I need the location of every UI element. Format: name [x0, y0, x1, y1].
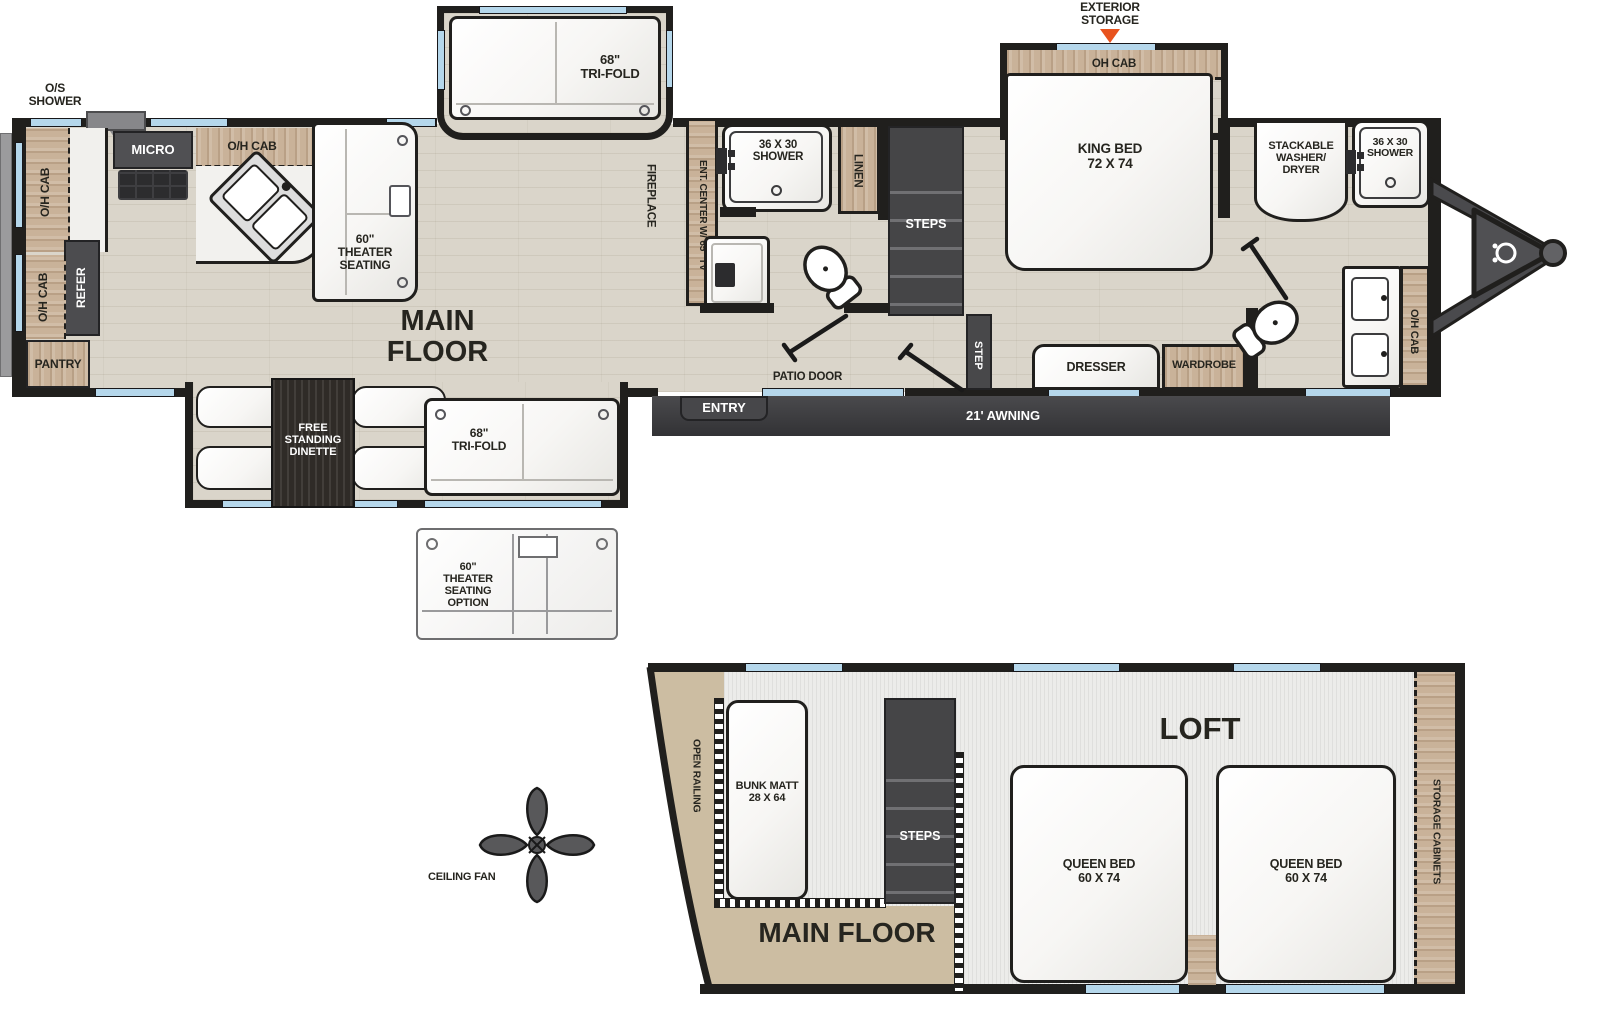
window [30, 118, 82, 127]
shower-knob-icon [728, 150, 735, 157]
shower-knob-icon [1357, 164, 1364, 171]
step-label: STEP [972, 324, 984, 386]
oh-cab-label: O/H CAB [39, 142, 52, 242]
wall [844, 303, 890, 313]
refrigerator: REFER [64, 240, 100, 336]
storage-cabinets-label: STORAGE CABINETS [1430, 762, 1441, 902]
storage-cabinets: STORAGE CABINETS [1414, 672, 1455, 984]
king-bed: KING BED 72 X 74 [1005, 73, 1213, 271]
oh-cab-label: O/H CAB [196, 140, 308, 153]
microwave: MICRO [113, 131, 193, 169]
entry-door: ENTRY [680, 396, 768, 421]
drain-icon [1385, 177, 1396, 188]
sofa-bolt-icon [598, 409, 609, 420]
window [1233, 663, 1321, 672]
loft-title: LOFT [1130, 712, 1270, 745]
window [150, 118, 228, 127]
wall [1246, 308, 1258, 390]
bath-sink [704, 236, 770, 310]
shower-knob-icon [1357, 152, 1364, 159]
overhead-cabinet: O/H CAB [1400, 266, 1430, 388]
wall [720, 207, 756, 217]
kitchen-counter [70, 128, 108, 252]
theater-option-label: 60" THEATER SEATING OPTION [428, 562, 508, 610]
sofa-bolt-icon [397, 135, 408, 146]
window [437, 30, 445, 90]
bunk-mattress: BUNK MATT 28 X 64 [726, 700, 808, 900]
vanity [1342, 266, 1402, 388]
main-floor-label: MAIN FLOOR [350, 306, 525, 369]
exterior-storage-label: EXTERIOR STORAGE [1040, 1, 1180, 27]
queen-bed-left: QUEEN BED 60 X 74 [1010, 765, 1188, 983]
tri-fold-top-label: 68" TRI-FOLD [564, 53, 656, 81]
king-bed-label: KING BED 72 X 74 [1060, 142, 1160, 171]
window [1013, 663, 1120, 672]
dinette-label: FREE STANDING DINETTE [273, 422, 353, 458]
queen-bed-right-label: QUEEN BED 60 X 74 [1256, 858, 1356, 885]
rear-bumper [0, 133, 12, 377]
window [15, 254, 23, 332]
wardrobe-label: WARDROBE [1165, 360, 1243, 372]
steps-to-bedroom: STEPS [888, 126, 964, 316]
window [95, 388, 175, 397]
washer-dryer: STACKABLE WASHER/ DRYER [1254, 120, 1348, 222]
theater-seating: 60" THEATER SEATING [312, 122, 418, 302]
loft-steps: STEPS [884, 698, 956, 904]
window [666, 30, 673, 88]
sofa-bolt-icon [596, 538, 608, 550]
wardrobe: WARDROBE [1162, 344, 1246, 390]
window [1225, 984, 1385, 994]
cup-holder [389, 185, 411, 217]
window [479, 6, 627, 14]
shower-head-icon [1346, 150, 1356, 174]
console-tray [518, 536, 558, 558]
drain-icon [771, 185, 782, 196]
loft-main-floor-label: MAIN FLOOR [758, 918, 936, 948]
dresser: DRESSER [1032, 344, 1160, 390]
linen-cabinet: LINEN [838, 124, 880, 214]
shower-knob-icon [728, 163, 735, 170]
sofa-bolt-icon [460, 105, 471, 116]
wall [700, 303, 774, 313]
window [424, 500, 602, 508]
oh-cab-label: O/H CAB [37, 255, 50, 339]
hitch-coupler-icon [1541, 241, 1565, 265]
sofa-bolt-icon [435, 409, 446, 420]
loft-steps-label: STEPS [886, 830, 954, 844]
tri-fold-bottom-label: 68" TRI-FOLD [433, 427, 525, 453]
steps-label: STEPS [890, 218, 962, 232]
oh-cab-right-label: O/H CAB [1407, 289, 1419, 375]
washer-label: STACKABLE WASHER/ DRYER [1259, 141, 1343, 177]
window [745, 663, 843, 672]
faucet-icon [715, 263, 735, 287]
patio-door-label: PATIO DOOR [755, 371, 860, 383]
open-railing-label: OPEN RAILING [690, 726, 701, 826]
sofa-bolt-icon [397, 277, 408, 288]
linen-label: LINEN [851, 135, 863, 207]
queen-bed-left-label: QUEEN BED 60 X 74 [1049, 858, 1149, 885]
refer-label: REFER [75, 252, 88, 324]
window [1085, 984, 1180, 994]
shower-head-icon [716, 148, 727, 174]
queen-bed-right: QUEEN BED 60 X 74 [1216, 765, 1396, 983]
theater-seating-label: 60" THEATER SEATING [319, 233, 411, 272]
bed-divider [1188, 935, 1216, 985]
tri-fold-sofa-top: 68" TRI-FOLD [449, 16, 661, 120]
wall [1455, 663, 1465, 994]
os-shower-label: O/S SHOWER [10, 82, 100, 108]
overhead-cabinet: O/H CAB [26, 255, 66, 339]
dinette-table: FREE STANDING DINETTE [271, 378, 355, 508]
wall [1218, 118, 1230, 218]
sofa-bolt-icon [426, 538, 438, 550]
exterior-storage-arrow-icon [1100, 29, 1120, 43]
railing [714, 698, 724, 904]
pantry-label: PANTRY [28, 358, 88, 371]
theater-seating-option: 60" THEATER SEATING OPTION [416, 528, 618, 640]
entry-step: STEP [966, 314, 992, 390]
overhead-cabinet: O/H CAB [26, 128, 70, 252]
front-shower-label: 36 X 30 SHOWER [1359, 137, 1421, 160]
ceiling-fan-label: CEILING FAN [428, 872, 528, 884]
ceiling-fan-icon [480, 788, 594, 902]
stove-cooktop [118, 170, 188, 200]
mid-shower: 36 X 30 SHOWER [722, 124, 832, 212]
tri-fold-sofa-bottom: 68" TRI-FOLD [424, 398, 620, 496]
dresser-label: DRESSER [1035, 361, 1157, 375]
sofa-bolt-icon [639, 105, 650, 116]
awning-label: 21' AWNING [966, 409, 1086, 423]
rv-floorplan-diagram: 68" TRI-FOLD O/S SHOWER 21' AWNING ENTRY… [0, 0, 1600, 1012]
fireplace-label: FIREPLACE [644, 148, 656, 244]
hitch-triangle [1474, 210, 1552, 296]
oh-cab-bed-label: OH CAB [1007, 58, 1221, 70]
pantry: PANTRY [26, 340, 90, 388]
window [15, 142, 23, 228]
mid-shower-label: 36 X 30 SHOWER [737, 139, 819, 164]
bunk-label: BUNK MATT 28 X 64 [729, 781, 805, 805]
faucet-icon [1381, 295, 1387, 301]
faucet-icon [1381, 351, 1387, 357]
